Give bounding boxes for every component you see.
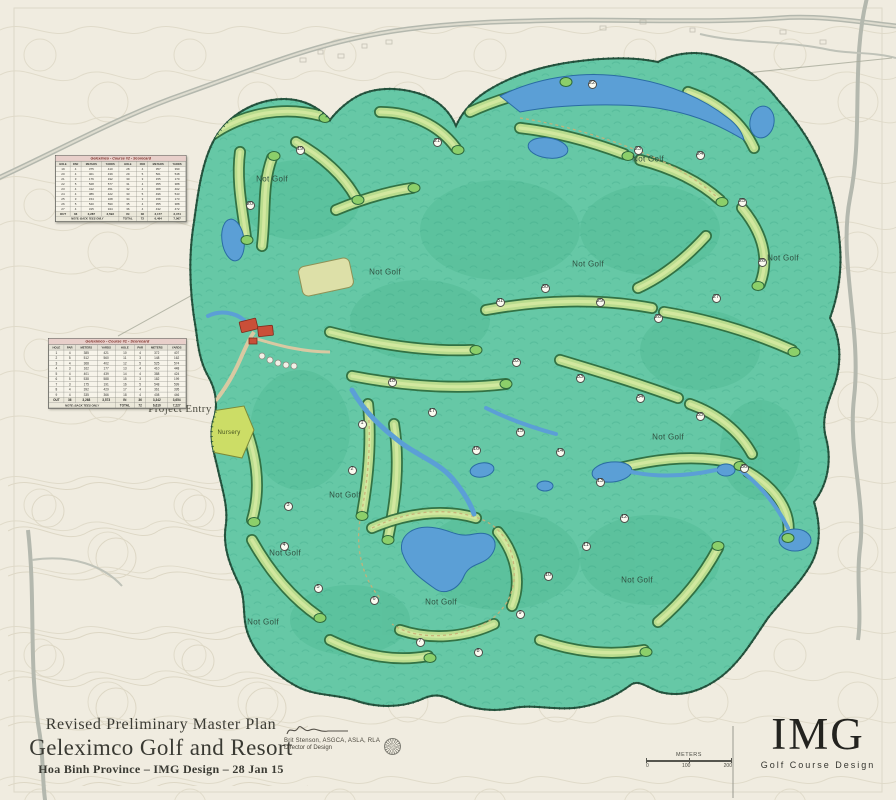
title-block: Revised Preliminary Master Plan Geleximc… bbox=[28, 716, 294, 777]
plan-title: Geleximco Golf and Resort bbox=[28, 735, 294, 761]
scorecard-table: HOLEPARMETERSYARDSHOLEPARMETERSYARDS 194… bbox=[56, 161, 186, 221]
scorecard-note: NOTE: BACK TEES ONLY bbox=[56, 216, 119, 221]
img-logo-tagline: Golf Course Design bbox=[744, 760, 892, 770]
scale-bar: METERS 0 100 200 bbox=[646, 752, 732, 769]
scorecard-table: HOLEPARMETERSYARDSHOLEPARMETERSYARDS 143… bbox=[49, 345, 186, 408]
scorecard-total-row: NOTE: BACK TEES ONLYTOTAL726,6107,227 bbox=[49, 403, 186, 408]
img-logo: IMG bbox=[744, 712, 892, 757]
plan-sheet: Not GolfNot GolfNot GolfNot GolfNot Golf… bbox=[0, 0, 896, 800]
signature-icon bbox=[284, 722, 354, 738]
scorecard-course-2: Geleximco - Course #2 - Scorecard HOLEPA… bbox=[55, 155, 451, 357]
scale-tick-200: 200 bbox=[724, 763, 732, 769]
scale-bar-line bbox=[646, 760, 732, 762]
scale-tick-100: 100 bbox=[682, 763, 690, 769]
scorecard-note: NOTE: BACK TEES ONLY bbox=[49, 403, 115, 408]
plan-caption: Hoa Binh Province – IMG Design – 28 Jan … bbox=[28, 762, 294, 777]
scorecard-total-row: NOTE: BACK TEES ONLYTOTAL726,4647,067 bbox=[56, 216, 186, 221]
plan-subtitle: Revised Preliminary Master Plan bbox=[28, 716, 294, 734]
signature-block: Brit Stenson, ASGCA, ASLA, RLA Director … bbox=[284, 722, 414, 751]
scale-tick-0: 0 bbox=[646, 763, 649, 769]
img-logo-block: IMG Golf Course Design bbox=[744, 712, 892, 770]
seal-icon bbox=[384, 738, 401, 755]
scorecard-course-1: Geleximco - Course #1 - Scorecard HOLEPA… bbox=[48, 338, 444, 540]
